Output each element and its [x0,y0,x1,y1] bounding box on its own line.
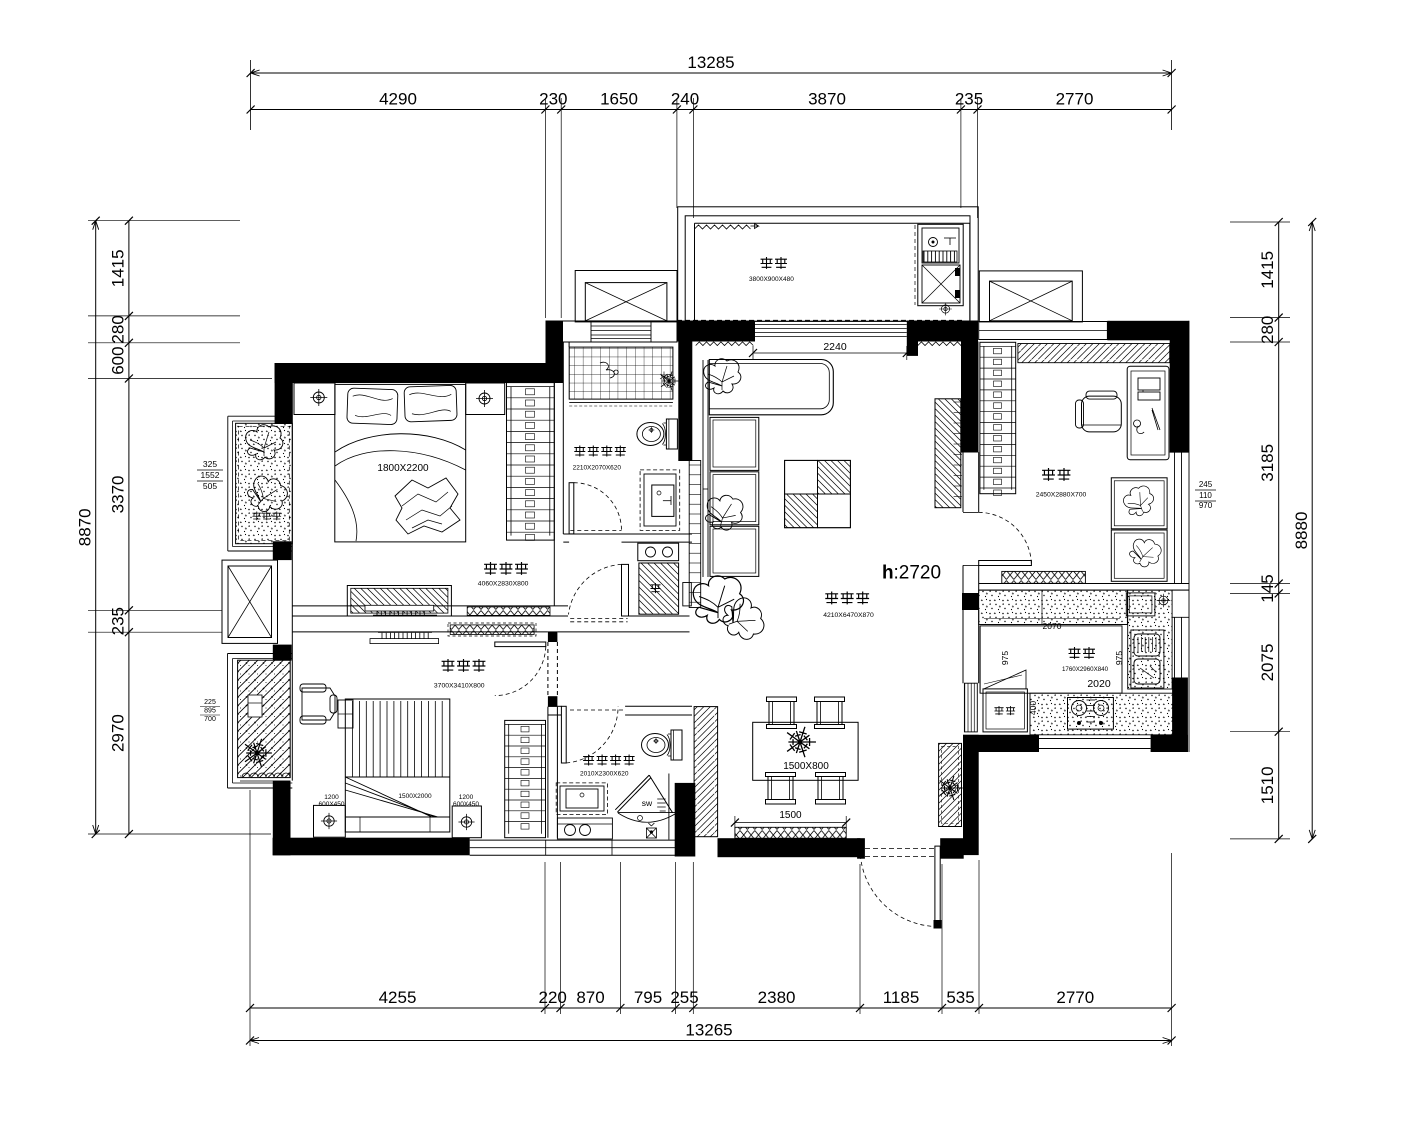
svg-text:1500X2000: 1500X2000 [398,793,432,800]
svg-text:3185: 3185 [1258,444,1277,482]
svg-text:4060X2830X800: 4060X2830X800 [478,581,529,588]
svg-text:1552: 1552 [201,470,220,480]
svg-text:975: 975 [1114,651,1124,665]
svg-text:3870: 3870 [808,90,846,109]
svg-text:1500X800: 1500X800 [783,761,829,772]
svg-text:2240: 2240 [823,341,847,353]
svg-text:1510: 1510 [1258,766,1277,804]
svg-text:4255: 4255 [379,988,417,1007]
svg-text:245: 245 [1199,480,1213,489]
svg-text::2720: :2720 [894,563,942,584]
svg-text:870: 870 [576,988,604,1007]
svg-text:970: 970 [1199,501,1213,510]
svg-text:1200: 1200 [459,794,474,801]
svg-text:2070: 2070 [1043,621,1062,631]
svg-text:280: 280 [109,315,128,343]
svg-text:1500: 1500 [779,810,802,821]
svg-text:2075: 2075 [1258,644,1277,682]
svg-text:2770: 2770 [1056,90,1094,109]
svg-text:235: 235 [109,607,128,635]
svg-text:280: 280 [1258,316,1277,344]
svg-text:795: 795 [634,988,662,1007]
svg-text:1415: 1415 [109,249,128,287]
svg-text:2970: 2970 [109,714,128,752]
svg-text:700: 700 [204,716,216,723]
svg-text:1760X2960X840: 1760X2960X840 [1062,666,1109,673]
svg-text:2770: 2770 [1056,988,1094,1007]
svg-text:600: 600 [109,346,128,374]
svg-text:sw: sw [642,798,653,808]
svg-text:240: 240 [671,90,699,109]
svg-text:4290: 4290 [379,90,417,109]
svg-text:3370: 3370 [109,475,128,513]
svg-text:325: 325 [203,459,217,469]
svg-text:535: 535 [946,988,974,1007]
svg-text:600X450: 600X450 [453,801,479,808]
svg-text:400: 400 [1028,701,1038,715]
svg-text:600X450: 600X450 [318,801,344,808]
svg-text:1185: 1185 [883,988,920,1007]
svg-text:2380: 2380 [758,988,796,1007]
svg-text:255: 255 [670,988,698,1007]
svg-text:145: 145 [1258,574,1277,602]
svg-text:2010X2300X620: 2010X2300X620 [580,771,629,778]
svg-text:220: 220 [539,988,567,1007]
svg-text:1200: 1200 [324,794,339,801]
svg-text:8880: 8880 [1292,512,1311,550]
svg-text:3700X3410X800: 3700X3410X800 [434,683,485,690]
svg-text:2450X2880X700: 2450X2880X700 [1036,492,1087,499]
svg-text:4210X6470X870: 4210X6470X870 [823,612,874,619]
svg-text:2020: 2020 [1087,678,1111,690]
svg-text:1650: 1650 [600,90,638,109]
svg-text:505: 505 [203,481,217,491]
svg-text:230: 230 [539,90,567,109]
svg-text:8870: 8870 [76,508,95,546]
svg-text:1415: 1415 [1258,251,1277,289]
svg-text:2210X2070X620: 2210X2070X620 [573,465,622,472]
svg-text:975: 975 [1000,651,1010,665]
svg-text:235: 235 [955,90,983,109]
svg-text:225: 225 [204,699,216,706]
svg-text:1800X2200: 1800X2200 [377,463,429,474]
svg-text:110: 110 [1199,491,1212,500]
svg-text:h: h [882,563,894,584]
svg-text:13265: 13265 [685,1021,732,1040]
svg-text:13285: 13285 [687,53,734,72]
svg-text:3800X900X480: 3800X900X480 [749,276,794,283]
svg-text:895: 895 [204,708,216,715]
